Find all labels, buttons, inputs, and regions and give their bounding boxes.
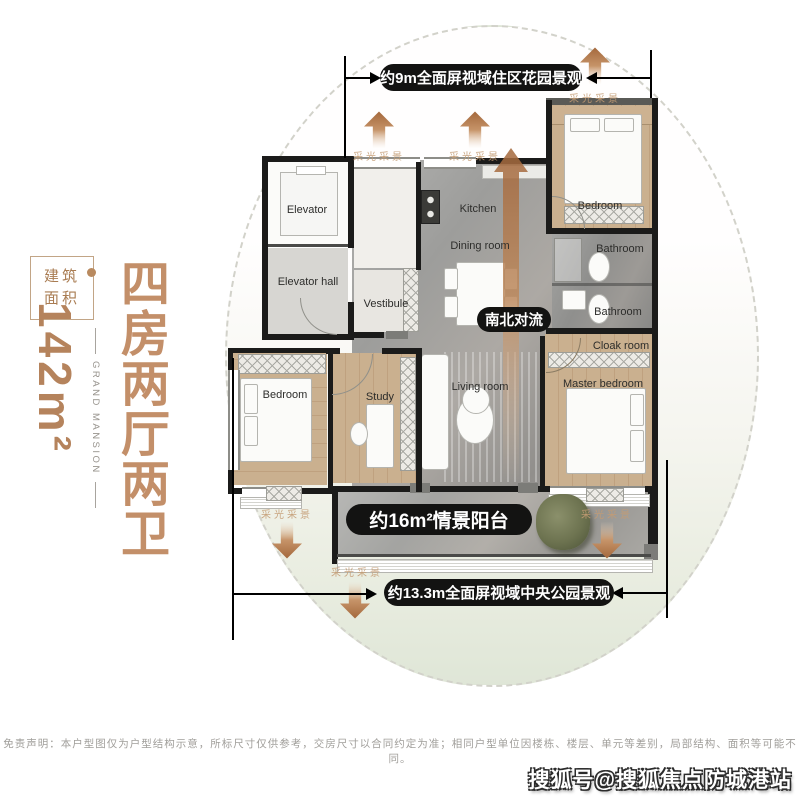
dimension-line xyxy=(234,593,368,595)
wall xyxy=(262,334,354,340)
arrowhead-right-icon xyxy=(366,588,377,600)
wall xyxy=(228,348,332,353)
wall xyxy=(540,336,545,488)
dining-chair xyxy=(444,268,458,290)
daylight-arrow-up-icon xyxy=(364,110,394,150)
wall xyxy=(416,348,422,492)
room-label-cloak: Cloak room xyxy=(571,340,671,352)
daylight-label: 采光采景 xyxy=(572,506,642,521)
area-value: 142m² xyxy=(28,302,82,455)
headline-text: 四房两厅两卫 xyxy=(106,258,177,558)
pillow xyxy=(630,394,644,426)
study-chair xyxy=(350,422,368,446)
floor-corridor xyxy=(354,162,420,268)
dimension-line xyxy=(232,358,234,640)
study-desk xyxy=(366,404,394,468)
brand-en-block: GRAND MANSION xyxy=(90,328,101,584)
room-label-bathroom-1: Bathroom xyxy=(570,243,670,255)
room-label-vestibule: Vestibule xyxy=(336,298,436,310)
wall xyxy=(262,156,354,162)
entry-door xyxy=(386,331,408,339)
dimension-line xyxy=(344,56,346,158)
wall xyxy=(348,156,354,248)
floorplan-page: Elevator Elevator hall Vestibule Kitchen… xyxy=(0,0,800,800)
sofa xyxy=(421,354,449,470)
balcony-label: 约16m²情景阳台 xyxy=(346,504,532,535)
elevator-door-mark xyxy=(296,166,326,175)
wall xyxy=(652,98,658,338)
bedroom-left-wardrobe xyxy=(238,354,326,374)
pillow xyxy=(570,118,600,132)
wall-divider xyxy=(268,244,348,247)
wall xyxy=(228,488,242,494)
wall xyxy=(332,486,338,564)
room-label-dining: Dining room xyxy=(430,240,530,252)
room-label-bedroom-top: Bedroom xyxy=(550,200,650,212)
dimension-line xyxy=(666,460,668,618)
wall-cap xyxy=(644,544,658,560)
pillow xyxy=(630,430,644,462)
watermark-text: 搜狐号@搜狐焦点防城港站 xyxy=(529,764,792,794)
airflow-label: 南北对流 xyxy=(477,307,551,332)
toilet xyxy=(588,252,610,282)
arrowhead-left-icon xyxy=(586,72,597,84)
planter-box xyxy=(586,488,624,502)
bathroom-divider xyxy=(552,283,652,286)
divider-line xyxy=(95,482,96,508)
daylight-arrow-down-icon xyxy=(272,520,302,560)
room-label-study: Study xyxy=(330,391,430,403)
daylight-label: 采光采景 xyxy=(252,506,322,521)
room-label-bedroom-left: Bedroom xyxy=(235,389,335,401)
pillow xyxy=(604,118,634,132)
wall xyxy=(416,162,421,270)
room-label-master: Master bedroom xyxy=(553,378,653,390)
area-dot-icon xyxy=(87,268,96,277)
pillow xyxy=(244,416,258,446)
sliding-door xyxy=(518,483,538,493)
daylight-arrow-down-icon xyxy=(340,580,370,620)
area-label-line1: 建筑 xyxy=(44,266,80,289)
wall xyxy=(538,486,546,492)
divider-line xyxy=(95,328,96,354)
brand-en-text: GRAND MANSION xyxy=(90,361,101,475)
balcony-plant xyxy=(536,494,590,550)
dining-chair xyxy=(444,296,458,318)
dimension-line xyxy=(650,50,652,98)
study-bookshelf xyxy=(400,357,416,471)
bottom-view-label: 约13.3m全面屏视域中央公园景观 xyxy=(384,579,614,606)
planter-box xyxy=(266,486,302,501)
room-label-living: Living room xyxy=(430,381,530,393)
daylight-arrow-down-icon xyxy=(592,520,622,560)
room-label-bathroom-2: Bathroom xyxy=(568,306,668,318)
top-view-label: 约9m全面屏视域住区花园景观 xyxy=(380,64,582,91)
wall xyxy=(652,336,658,492)
wall xyxy=(262,156,268,340)
room-label-elevator-hall: Elevator hall xyxy=(258,276,358,288)
daylight-label: 采光采景 xyxy=(440,148,510,163)
room-label-kitchen: Kitchen xyxy=(428,203,528,215)
daylight-label: 采光采景 xyxy=(560,90,630,105)
wall xyxy=(354,332,384,338)
daylight-arrow-up-icon xyxy=(460,110,490,150)
dimension-line xyxy=(620,592,668,594)
disclaimer-text: 免责声明：本户型图仅为户型结构示意，所标尺寸仅供参考，交房尺寸以合同约定为准；相… xyxy=(0,736,800,766)
window xyxy=(228,370,240,470)
dimension-line xyxy=(596,77,650,79)
wall xyxy=(546,328,658,334)
wall xyxy=(332,486,410,492)
room-label-elevator: Elevator xyxy=(267,204,347,216)
wall xyxy=(430,486,518,492)
daylight-label: 采光采景 xyxy=(322,564,392,579)
daylight-label: 采光采景 xyxy=(344,148,414,163)
